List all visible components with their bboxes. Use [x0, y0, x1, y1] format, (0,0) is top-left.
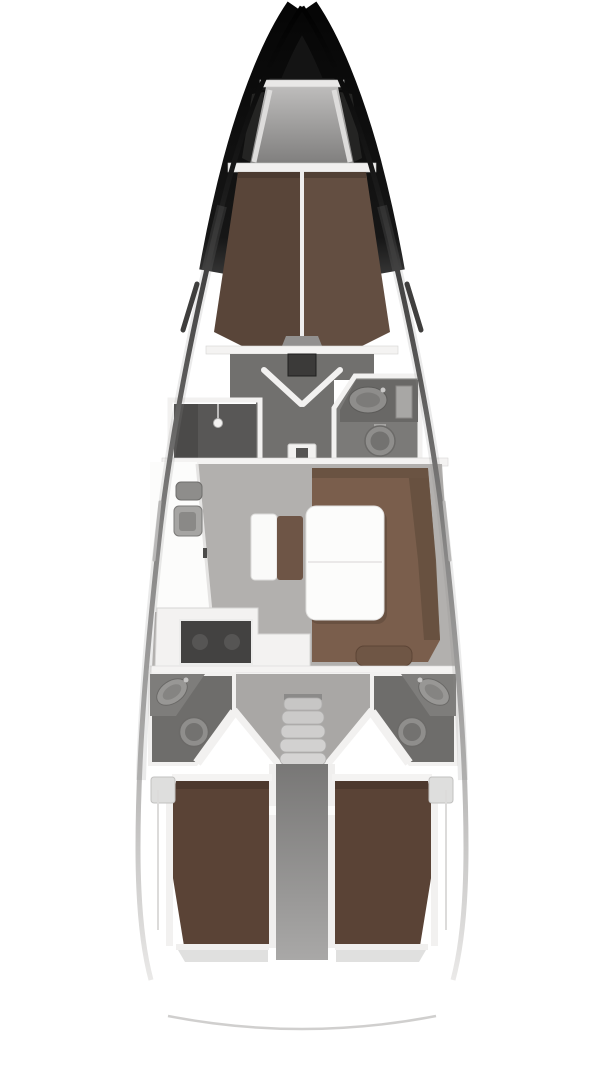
forward-head [334, 376, 420, 460]
companionway-stairs [280, 698, 326, 765]
floor-plan-canvas [0, 0, 608, 1080]
aft-port-corner-locker [151, 777, 175, 803]
aft-cabins [151, 764, 453, 962]
aft-port-berth-foot-wall [176, 944, 269, 950]
aft-port-berth [172, 781, 269, 946]
cooktop-burner-left [192, 634, 208, 650]
cooktop-burner-right [224, 634, 240, 650]
mast-step-box [288, 354, 316, 376]
chaise-bench-seat [251, 514, 277, 580]
port-fixture-upper [176, 482, 202, 500]
forward-head-sink-basin [356, 393, 380, 408]
aft-starboard-cabin-wall [332, 774, 432, 781]
forward-head-faucet-icon [381, 388, 386, 393]
center-corridor [276, 764, 328, 960]
aft-port-cabin [151, 777, 269, 962]
salon-settee-end-cushion [356, 646, 412, 666]
forward-bulkhead [206, 346, 398, 354]
v-berth-center-seam [300, 170, 304, 352]
aft-starboard-cabin-floor [336, 950, 426, 962]
salon-settee-top-cushion [312, 468, 428, 478]
port-fixture-sink-basin [179, 512, 196, 531]
aft-port-outer-wall [166, 781, 173, 946]
aft-port-head-toilet-bowl [185, 723, 203, 741]
aft-starboard-berth-foot-wall [335, 944, 428, 950]
corridor-wall-notch-port [269, 806, 276, 815]
aft-starboard-berth [335, 781, 432, 946]
corridor-wall-notch-starboard [328, 806, 335, 815]
port-latch-detail [203, 548, 207, 558]
aft-port-cabin-floor [178, 950, 268, 962]
aft-port-berth-head-shadow [176, 781, 269, 789]
corridor-wall-starboard [328, 764, 335, 948]
stair-tread-1 [284, 698, 322, 710]
aft-port-head-faucet-icon [184, 678, 189, 683]
forward-head-toilet-bowl [371, 432, 390, 451]
shower-head-icon [214, 419, 223, 428]
v-berth-cabin [214, 170, 390, 356]
aft-starboard-corner-locker [429, 777, 453, 803]
aft-starboard-outer-wall [431, 781, 438, 946]
stair-tread-4 [280, 739, 326, 752]
aft-bulkhead [150, 666, 458, 673]
shower-room [170, 400, 260, 462]
aft-port-cabin-wall [172, 774, 272, 781]
stair-tread-2 [282, 711, 324, 724]
stair-tread-5 [280, 753, 326, 765]
aft-starboard-head-toilet-bowl [403, 723, 421, 741]
lobby-doorway-shadow [296, 448, 308, 458]
anchor-locker-top-wall [260, 80, 344, 87]
aft-starboard-berth-head-shadow [335, 781, 428, 789]
aft-starboard-head-faucet-icon [418, 678, 423, 683]
forward-head-cabinet [396, 386, 412, 418]
salon-table [306, 506, 384, 620]
stair-tread-3 [281, 725, 325, 738]
galley-cooktop [180, 620, 252, 664]
corridor-wall-port [269, 764, 276, 948]
aft-starboard-cabin [335, 777, 453, 962]
chaise-bench-backrest [277, 516, 303, 580]
boat-floor-plan [0, 0, 608, 1080]
